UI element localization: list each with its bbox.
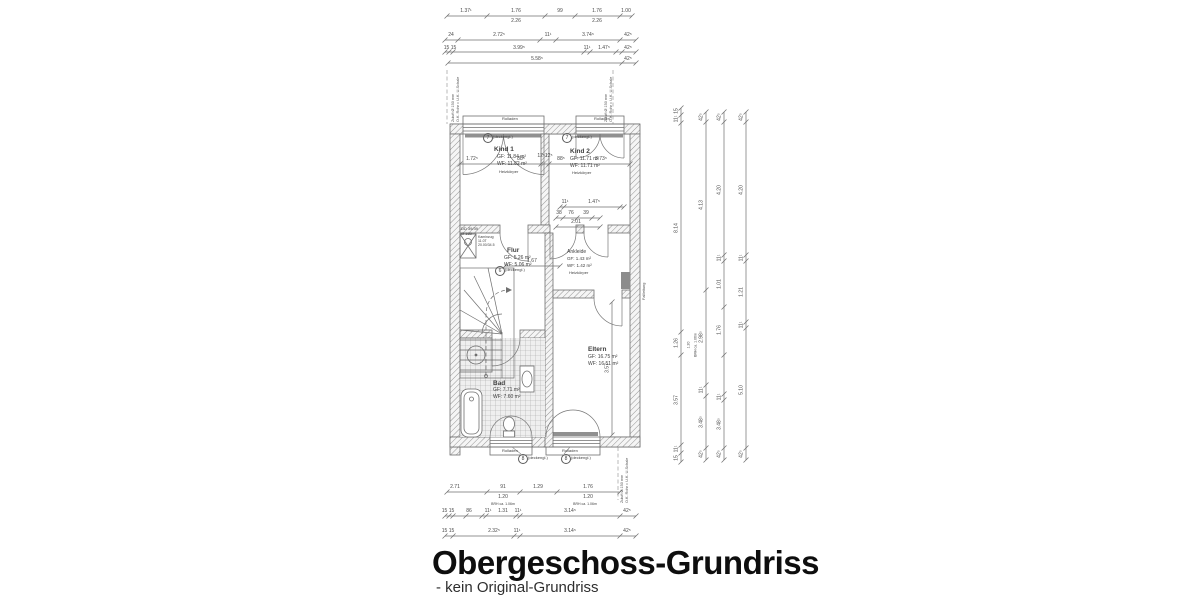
dim-label: 2.72⁵ <box>493 33 505 38</box>
room-name-flur: Flur <box>507 248 519 255</box>
room-wf-eltern: WF: 16.51 m² <box>588 362 618 367</box>
dim-label: 15 15 <box>442 529 455 534</box>
chimney-label-2: Ø 160 <box>461 232 472 236</box>
rolladen-label-top-left: Rolladen <box>502 117 518 121</box>
marker-note-top-right: (deckengl.) <box>572 135 592 139</box>
dim-label: 1.00 <box>621 9 631 14</box>
dim-label: 2.26 <box>592 19 602 24</box>
dim-label: 39 <box>583 211 589 216</box>
dim-label: 1.72⁵ <box>466 157 478 162</box>
dim-label: 3.14⁵ <box>564 509 576 514</box>
dim-label: 3.48⁵ <box>718 418 723 430</box>
dim-label: 11¹ <box>740 322 745 329</box>
rolladen-label-bottom-left: Rolladen <box>502 449 518 453</box>
dim-label: 42⁵ <box>624 57 632 62</box>
dim-label: 91 <box>500 485 506 490</box>
room-gf-ankleide: GF: 1.43 m² <box>567 257 591 262</box>
room-wf-kind1: WF: 11.82 m² <box>497 162 527 167</box>
dim-label: 11¹ <box>718 255 723 262</box>
dim-label: 42⁵ <box>623 529 631 534</box>
room-gf-eltern: GF: 16.75 m² <box>588 355 617 360</box>
dim-label: 2.01 <box>571 220 581 225</box>
annotation-zuluft-top-right-2: O.K. Rohr = U.K. U-Schale <box>610 77 614 122</box>
dim-label: 1.31 <box>498 509 508 514</box>
dim-label: 1.76 <box>583 485 593 490</box>
dim-label: 15 15 <box>442 509 455 514</box>
dim-label: 1.76 <box>511 9 521 14</box>
dim-label: 38 <box>556 211 562 216</box>
dim-label: 3.14⁵ <box>564 529 576 534</box>
room-name-eltern: Eltern <box>588 347 606 354</box>
dim-label: 4.20 <box>718 185 723 195</box>
dim-label: 42⁵ <box>700 113 705 121</box>
marker-note-bottom-left: (deckengl.) <box>528 456 548 460</box>
drawing-subtitle: - kein Original-Grundriss <box>436 579 599 596</box>
marker-note-flur: (deckengl.) <box>505 268 525 272</box>
dim-label: 1.47⁵ <box>598 46 610 51</box>
dim-label: 1.26 <box>675 338 680 348</box>
marker-circle-flur: 6 <box>495 266 505 276</box>
floorplan-page: 1.37¹1.762.26991.762.261.00242.72⁵11¹3.7… <box>0 0 1200 600</box>
dim-label: 11¹ <box>675 446 680 453</box>
room-name-kind2: Kind 2 <box>570 149 590 156</box>
marker-circle-bottom-right: 8 <box>561 454 571 464</box>
bathtub-icon <box>461 389 482 437</box>
dim-label: 3.74⁵ <box>582 33 594 38</box>
dim-label: 99 <box>557 9 563 14</box>
annotation-fallleitung: Fallleitung <box>643 283 647 300</box>
dim-label: 1.76 <box>718 325 723 335</box>
dim-label: 3.57 <box>675 395 680 405</box>
dim-label: 2.26 <box>511 19 521 24</box>
dim-label: 11¹ <box>562 200 569 205</box>
marker-note-top-left: (deckengl.) <box>493 135 513 139</box>
dim-label: 1.29 <box>533 485 543 490</box>
chimney-note-3: 20.00/34.5 <box>478 244 495 248</box>
dim-label: 1.01 <box>718 279 723 289</box>
dim-label: 42⁵ <box>623 509 631 514</box>
dim-label: 4.13 <box>700 200 705 210</box>
dim-label: 2.98⁵ <box>700 331 705 343</box>
dim-note: BRH ca. 1.06m <box>694 333 698 357</box>
dim-label: 42⁵ <box>624 46 632 51</box>
floorplan-drawing <box>0 0 1200 600</box>
dim-label: 1.20 <box>583 495 593 500</box>
annotation-zuluft-bottom-2: O.K. Rohr = U.K. U-Schale <box>626 458 630 503</box>
dim-label: 86 <box>466 509 472 514</box>
dim-note: BRH ca. 1.06m <box>573 503 597 507</box>
dim-label: 11¹ <box>485 509 492 514</box>
sink-icon <box>520 366 534 392</box>
dim-label: 11¹ <box>515 509 522 514</box>
room-wf-kind2: WF: 11.71 m² <box>570 164 600 169</box>
marker-note-bottom-right: (deckengl.) <box>571 456 591 460</box>
dim-label: 11¹ <box>718 394 723 401</box>
dim-label: 76 <box>568 211 574 216</box>
marker-circle-bottom-left: 8 <box>518 454 528 464</box>
room-sub-kind1: Heizkörper <box>499 170 518 174</box>
dim-label: 11¹ <box>700 387 705 394</box>
dim-label: 1.20 <box>498 495 508 500</box>
dim-label: 42⁵ <box>718 113 723 121</box>
dim-label: 42⁵ <box>740 113 745 121</box>
dim-note: BRH ca. 1.06m <box>491 503 515 507</box>
dim-label: 3.99⁵ <box>513 46 525 51</box>
dim-label: 11¹ <box>545 33 552 38</box>
dim-label: 11¹ <box>584 46 591 51</box>
dim-label: 42⁵ <box>624 33 632 38</box>
room-gf-flur: GF: 5.26 m² <box>504 256 531 261</box>
drawing-title: Obergeschoss-Grundriss <box>432 544 819 582</box>
room-name-kind1: Kind 1 <box>494 147 514 154</box>
dim-label: 8.14 <box>675 223 680 233</box>
dim-label: 1.76 <box>592 9 602 14</box>
dim-label: 1.37¹ <box>460 9 471 14</box>
dim-label: 42⁵ <box>718 450 723 458</box>
dimension-lines <box>443 14 749 539</box>
dim-label: 42⁵ <box>700 450 705 458</box>
dim-label: 15 15 <box>444 46 457 51</box>
dim-label: 42⁵ <box>740 450 745 458</box>
toilet-icon <box>504 417 515 437</box>
marker-circle-top-right: 7 <box>562 133 572 143</box>
room-name-ankleide: Ankleide <box>567 250 586 255</box>
chimney-symbol <box>460 234 476 258</box>
dim-label: 2.71 <box>450 485 460 490</box>
dim-label: 1.21 <box>740 287 745 297</box>
dim-label: 3.48⁵ <box>700 416 705 428</box>
dim-label: 15 <box>675 108 680 114</box>
dim-label: 88⁵ <box>557 157 565 162</box>
dim-label: 12⁵12⁵ <box>537 154 552 159</box>
room-sub-kind2: Heizkörper <box>572 171 591 175</box>
dim-label: 5.58⁵ <box>531 57 543 62</box>
dim-label: 11¹ <box>514 529 521 534</box>
room-sub-ankleide: Heizkörper <box>569 271 588 275</box>
dim-label: 11¹ <box>740 255 745 262</box>
room-gf-bad: GF: 7.71 m² <box>493 388 520 393</box>
room-gf-kind2: GF: 11.71 m² <box>570 157 599 162</box>
room-wf-ankleide: WF: 1.42 m² <box>567 264 592 269</box>
dim-label: 15 <box>675 455 680 461</box>
dim-label: 24 <box>448 33 454 38</box>
dim-note: 1.20 <box>687 342 691 349</box>
dim-label: 4.20 <box>740 185 745 195</box>
room-wf-bad: WF: 7.60 m² <box>493 395 521 400</box>
dim-label: 5.10 <box>740 385 745 395</box>
dim-label: 11¹ <box>675 116 680 123</box>
marker-circle-top-left: 7 <box>483 133 493 143</box>
annotation-zuluft-top-left-2: O.K. Rohr = U.K. U-Schale <box>457 77 461 122</box>
dim-label: 1.47⁵ <box>588 200 600 205</box>
room-gf-kind1: GF: 11.84 m² <box>497 155 526 160</box>
rolladen-label-bottom-right: Rolladen <box>562 449 578 453</box>
radiator <box>621 272 630 289</box>
dim-label: 2.32⁵ <box>488 529 500 534</box>
